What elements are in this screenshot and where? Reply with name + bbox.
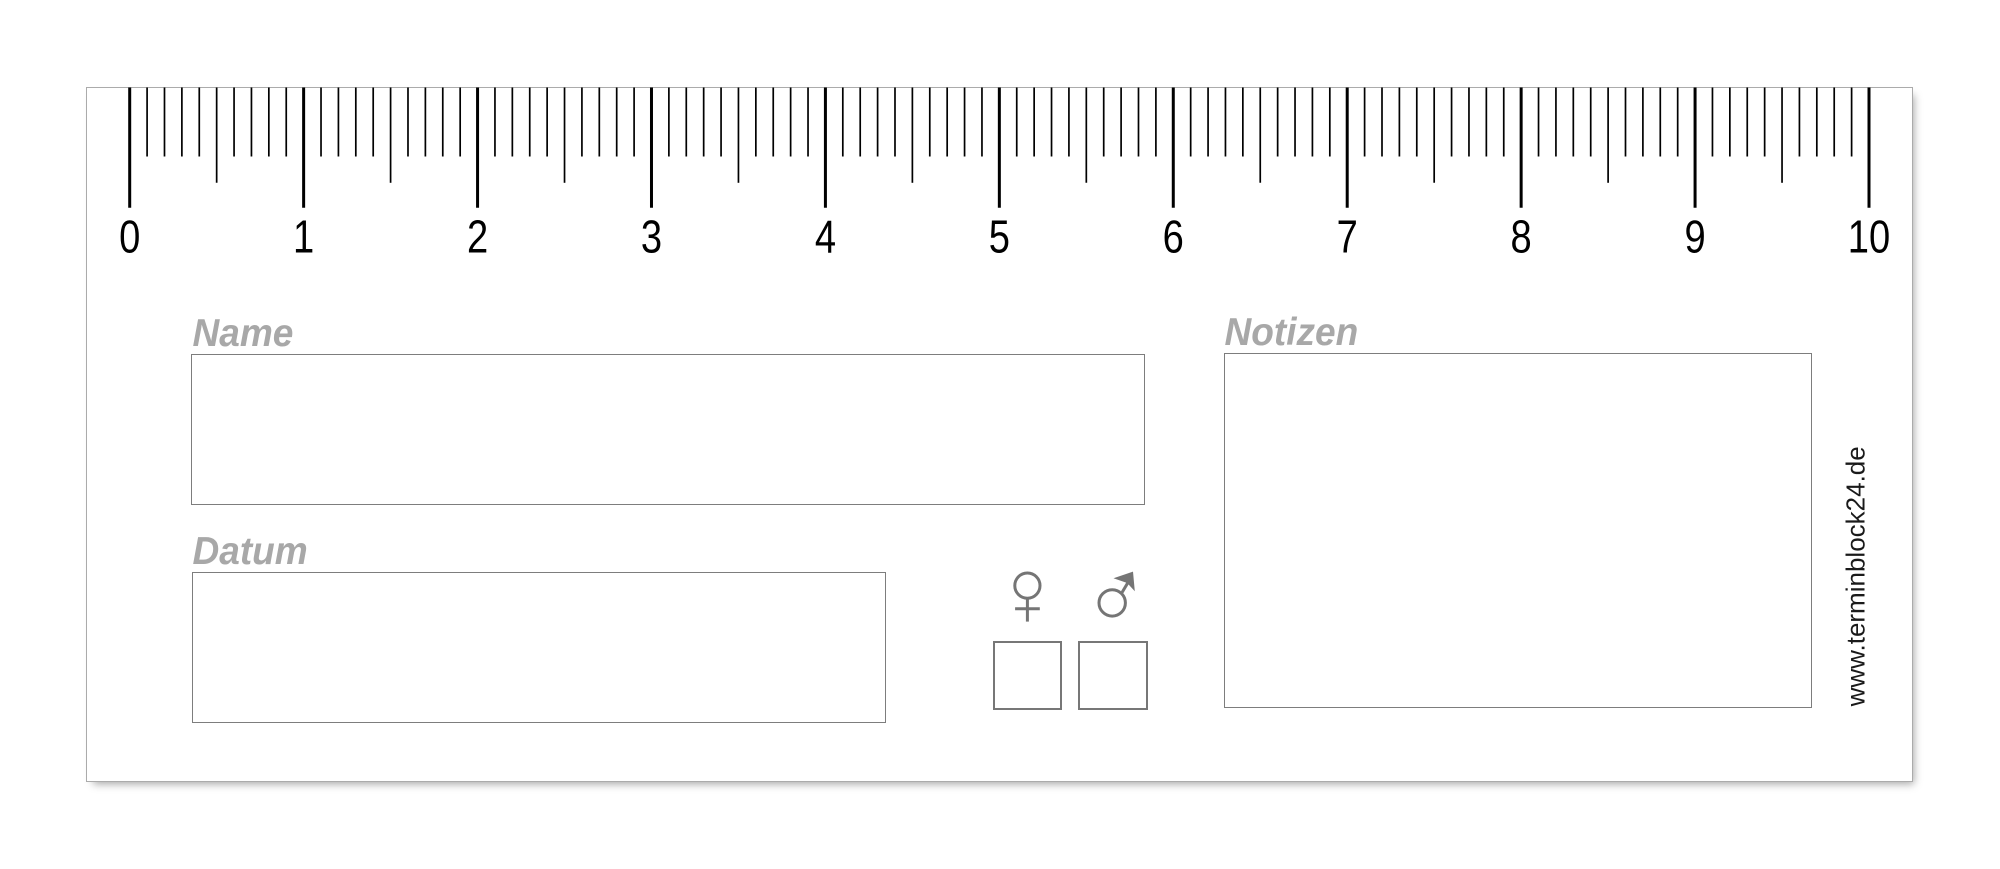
- svg-text:2: 2: [467, 212, 488, 263]
- svg-text:7: 7: [1337, 212, 1358, 263]
- svg-text:1: 1: [293, 212, 314, 263]
- svg-text:Name: Name: [193, 312, 294, 355]
- svg-text:Datum: Datum: [193, 530, 308, 573]
- svg-text:4: 4: [815, 212, 836, 263]
- svg-text:www.terminblock24.de: www.terminblock24.de: [1841, 446, 1871, 707]
- svg-text:5: 5: [989, 212, 1010, 263]
- svg-text:8: 8: [1511, 212, 1532, 263]
- svg-text:Notizen: Notizen: [1225, 311, 1359, 354]
- svg-text:10: 10: [1848, 212, 1890, 263]
- svg-text:6: 6: [1163, 212, 1184, 263]
- svg-text:3: 3: [641, 212, 662, 263]
- svg-text:0: 0: [119, 212, 140, 263]
- svg-text:9: 9: [1684, 212, 1705, 263]
